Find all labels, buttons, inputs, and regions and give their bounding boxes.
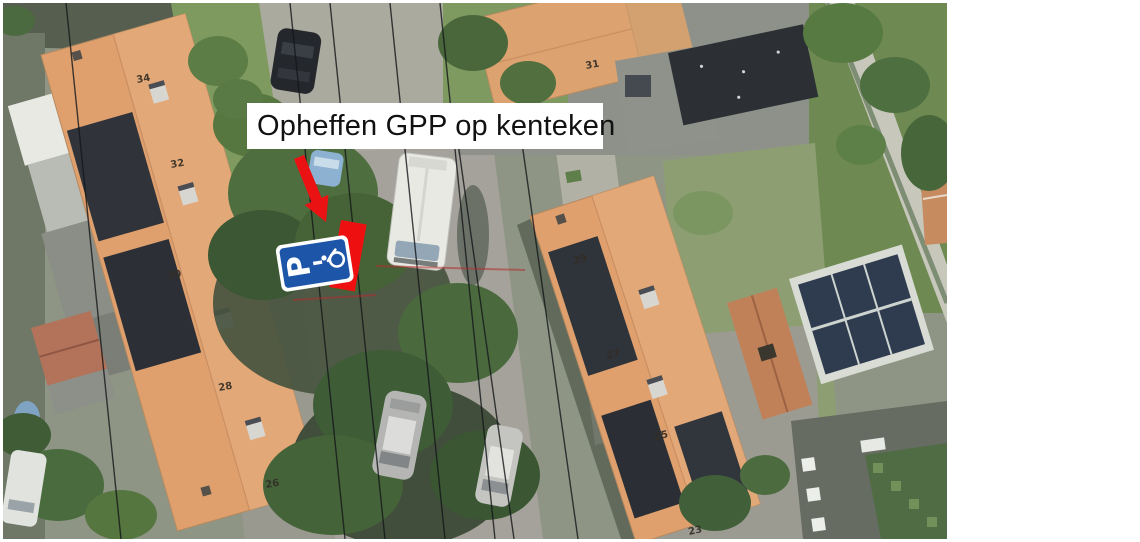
aerial-scene: P 34 32 30 28 26 31 29 27 25 23 — [3, 3, 947, 539]
aerial-photo: P 34 32 30 28 26 31 29 27 25 23 — [3, 3, 947, 539]
annotation-label: Opheffen GPP op kenteken — [247, 103, 603, 149]
slide-canvas: P 34 32 30 28 26 31 29 27 25 23 — [0, 0, 1140, 542]
flat-roof-building — [791, 401, 947, 539]
